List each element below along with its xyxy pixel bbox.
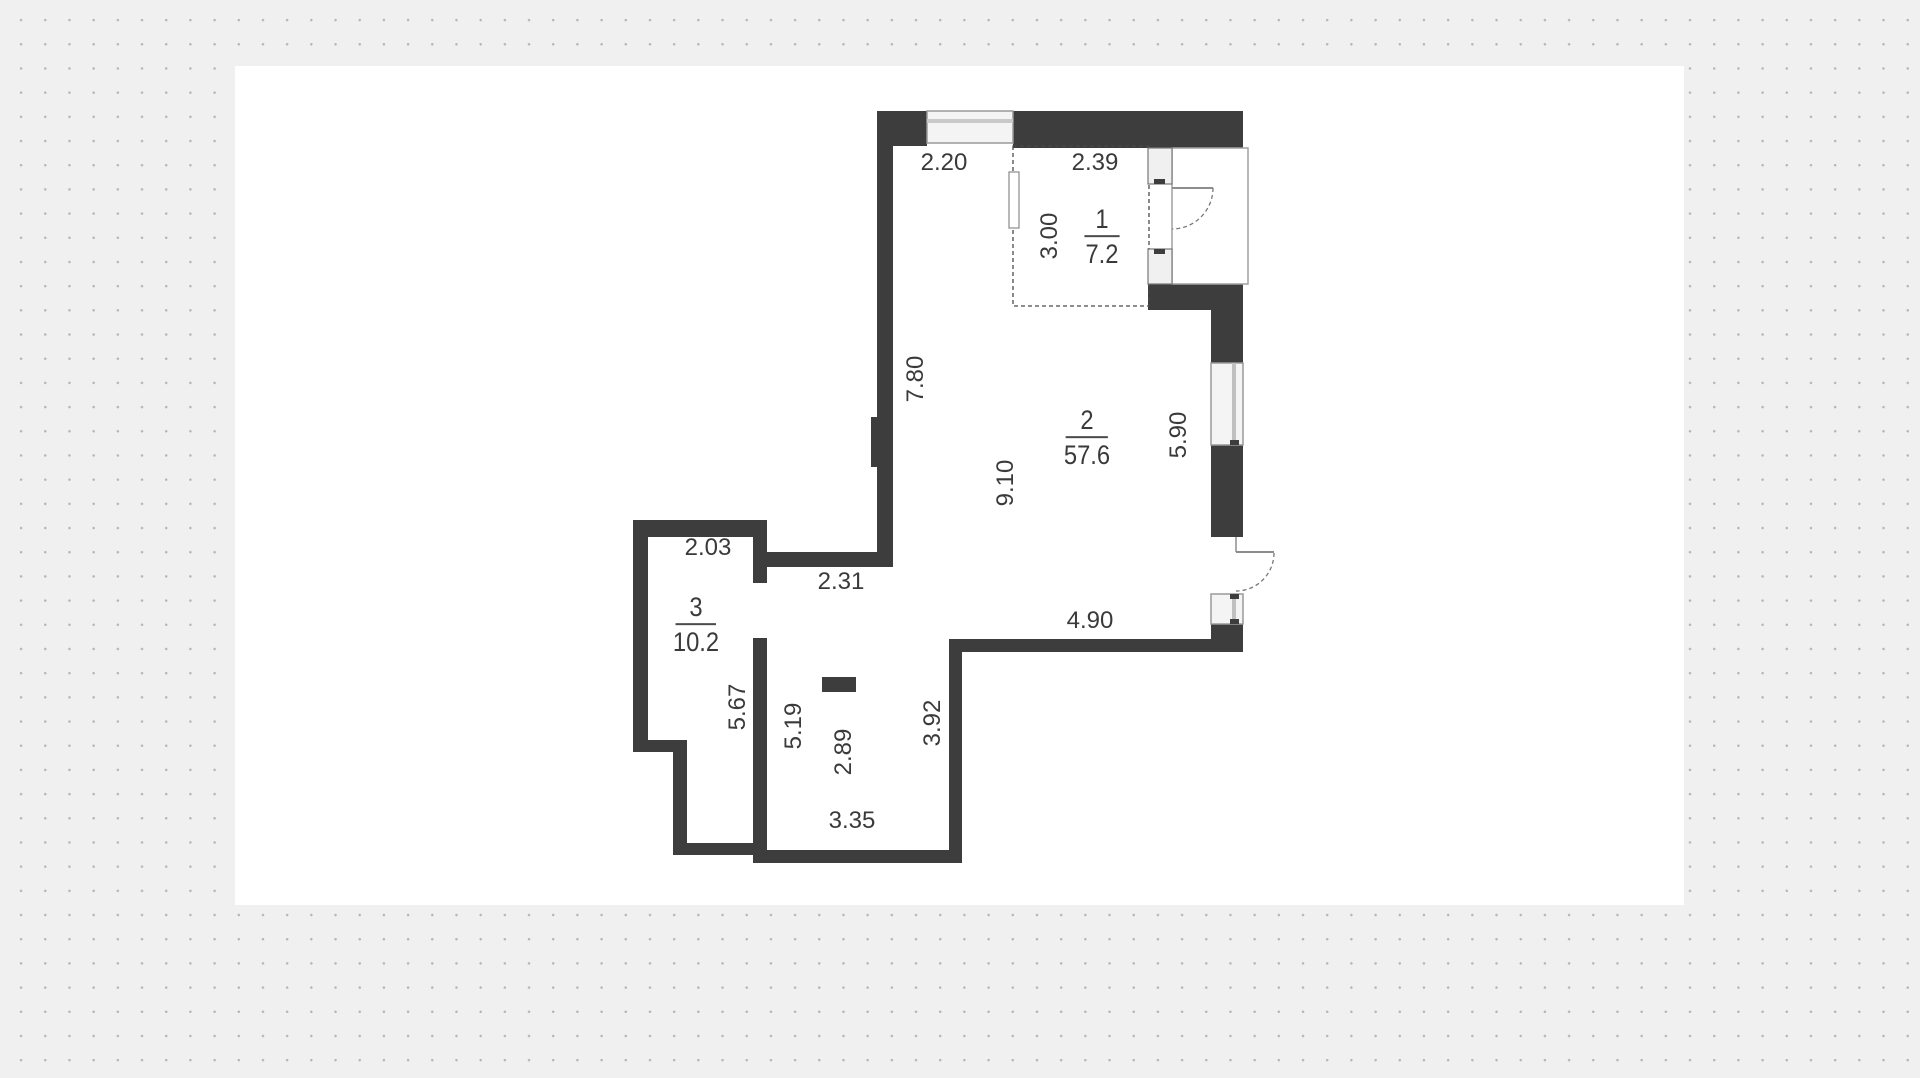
room-divider <box>1084 236 1119 238</box>
room-divider <box>1066 437 1108 439</box>
dimension-4.90: 4.90 <box>1067 609 1114 633</box>
dimension-2.39: 2.39 <box>1072 151 1119 175</box>
dimension-2.89: 2.89 <box>832 729 856 776</box>
room-label-1: 17.2 <box>1084 205 1119 269</box>
room-number: 3 <box>689 593 702 621</box>
dimension-7.80: 7.80 <box>904 356 928 403</box>
dotted-background: 2.202.393.007.809.105.902.032.314.905.67… <box>0 0 1920 1078</box>
dimension-5.67: 5.67 <box>726 684 750 731</box>
dimension-9.10: 9.10 <box>994 460 1018 507</box>
room-area: 7.2 <box>1085 241 1118 269</box>
dimension-3.00: 3.00 <box>1038 213 1062 260</box>
dimension-2.31: 2.31 <box>818 570 865 594</box>
dimension-5.19: 5.19 <box>782 703 806 750</box>
room-area: 10.2 <box>673 629 719 657</box>
room-area: 57.6 <box>1064 442 1110 470</box>
dimension-2.03: 2.03 <box>685 536 732 560</box>
labels-layer: 2.202.393.007.809.105.902.032.314.905.67… <box>0 0 1920 1078</box>
dimension-2.20: 2.20 <box>921 151 968 175</box>
room-number: 1 <box>1095 205 1108 233</box>
room-label-2: 257.6 <box>1064 406 1110 470</box>
room-divider <box>676 624 716 626</box>
dimension-3.92: 3.92 <box>921 700 945 747</box>
room-number: 2 <box>1080 406 1093 434</box>
dimension-3.35: 3.35 <box>829 809 876 833</box>
room-label-3: 310.2 <box>673 593 719 657</box>
dimension-5.90: 5.90 <box>1167 412 1191 459</box>
